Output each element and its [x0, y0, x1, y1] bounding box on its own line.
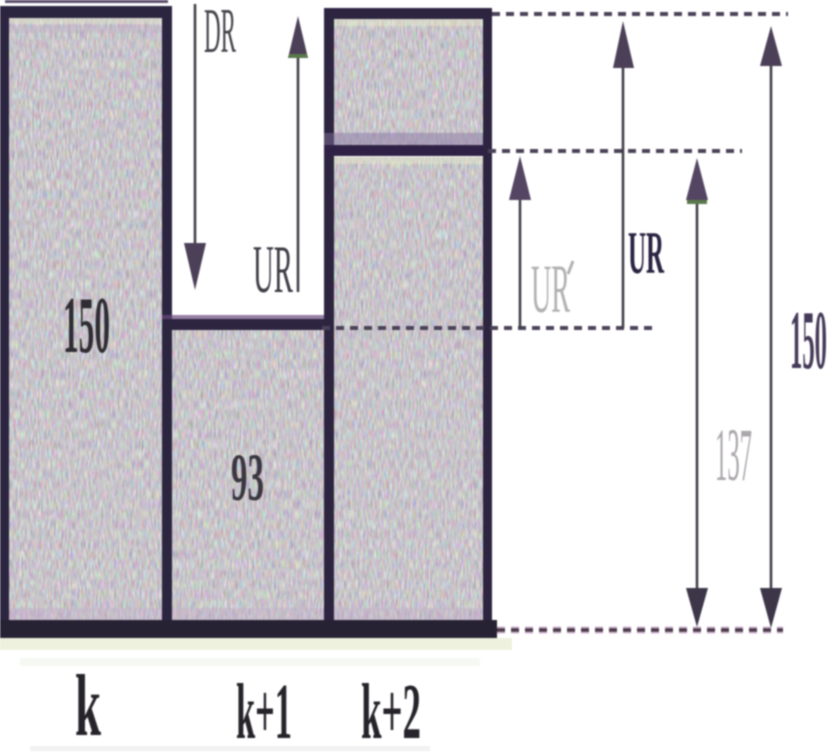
svg-text:k+2: k+2: [361, 669, 421, 753]
svg-text:150: 150: [790, 294, 827, 387]
svg-text:UR: UR: [253, 231, 293, 307]
svg-text:k+1: k+1: [236, 669, 292, 753]
svg-text:UR: UR: [531, 251, 570, 327]
svg-text:UR: UR: [628, 220, 664, 286]
svg-text:93: 93: [231, 439, 264, 515]
svg-text:k: k: [75, 658, 101, 753]
svg-text:DR: DR: [204, 0, 236, 66]
svg-text:150: 150: [63, 280, 110, 370]
svg-text:137: 137: [715, 414, 752, 497]
